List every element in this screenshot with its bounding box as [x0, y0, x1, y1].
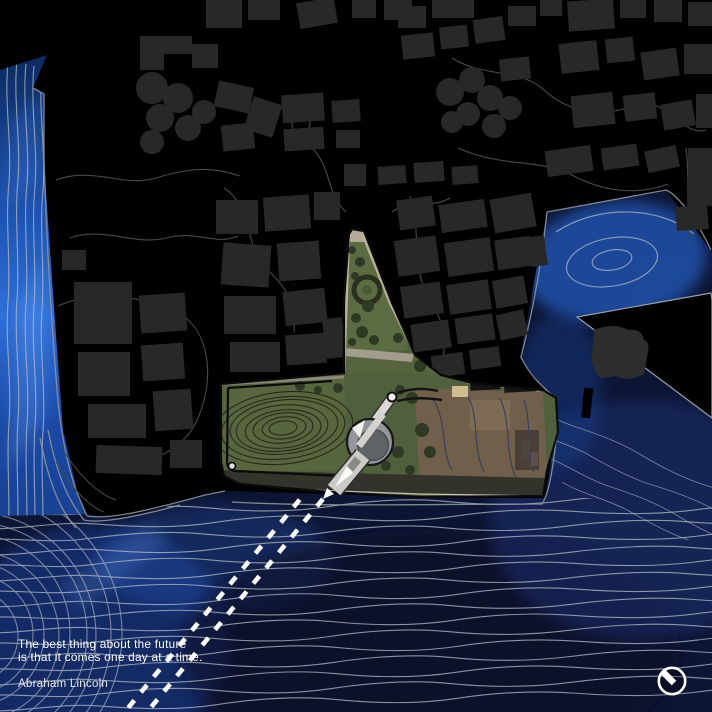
- site-plan-map: The best thing about the future is that …: [0, 0, 712, 712]
- north-arrow-icon: [659, 668, 685, 694]
- quote-author: Abraham Lincoln: [18, 678, 108, 690]
- quote-line-2: is that it comes one day at a time.: [18, 650, 202, 664]
- map-canvas: The best thing about the future is that …: [0, 0, 712, 712]
- pier-node: [388, 393, 397, 402]
- quote-line-1: The best thing about the future: [18, 637, 187, 651]
